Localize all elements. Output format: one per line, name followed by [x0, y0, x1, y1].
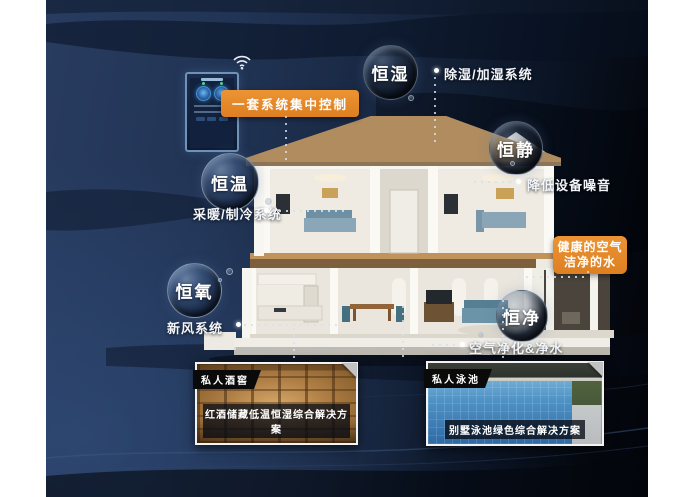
panel-button — [207, 117, 216, 121]
wine-cellar-caption: 红酒储藏低温恒湿综合解决方案 — [203, 404, 349, 438]
bubble-dot — [408, 95, 414, 101]
panel-button — [196, 117, 205, 121]
dotted-connector — [272, 210, 348, 212]
bubble-dot — [226, 268, 233, 275]
dotted-connector — [285, 116, 287, 162]
house-lower-floor — [242, 268, 610, 340]
pool-badge: 私人泳池 — [424, 369, 492, 388]
dotted-connector — [432, 344, 459, 346]
pool-photo-card: 私人泳池 别墅泳池绿色综合解决方案 — [426, 361, 604, 446]
bubble-dot — [510, 161, 515, 166]
connector-dot — [264, 208, 269, 213]
dotted-connector — [519, 276, 589, 278]
healthy-air-water-box: 健康的空气 洁净的水 — [553, 236, 627, 274]
bubble-oxygen: 恒氧 — [167, 263, 222, 318]
bubble-temperature: 恒温 — [201, 153, 259, 211]
dotted-connector — [434, 77, 436, 145]
note-temperature: 采暖/制冷系统 — [193, 204, 282, 223]
connector-dot — [460, 342, 465, 347]
bubble-dot — [218, 278, 222, 282]
bubble-humidity: 恒湿 — [363, 45, 418, 100]
dotted-connector — [502, 300, 504, 358]
connector-dot — [434, 68, 439, 73]
wifi-icon — [232, 54, 252, 70]
dotted-connector — [587, 271, 589, 278]
wine-cellar-photo-card: 私人酒窖 红酒储藏低温恒湿综合解决方案 — [195, 362, 358, 445]
note-purity: 空气净化&净水 — [469, 338, 563, 357]
dotted-connector — [244, 324, 338, 326]
highlight-line-1: 健康的空气 — [553, 240, 627, 255]
poster-canvas: 一套系统集中控制 健康的空气 洁净的水 恒湿 恒静 恒温 恒氧 恒净 除湿/加湿… — [46, 0, 648, 497]
wine-cellar-badge: 私人酒窖 — [193, 370, 261, 389]
folded-corner — [342, 363, 357, 378]
note-humidity: 除湿/加湿系统 — [444, 64, 533, 83]
dotted-connector — [293, 328, 295, 361]
dotted-connector — [474, 181, 515, 183]
panel-dial — [196, 86, 211, 101]
note-oxygen: 新风系统 — [167, 318, 223, 337]
bubble-quiet: 恒静 — [489, 121, 543, 175]
folded-corner — [588, 362, 603, 377]
dotted-connector — [402, 306, 404, 360]
panel-title-bar — [201, 78, 223, 81]
panel-button — [219, 117, 228, 121]
connector-dot — [516, 179, 521, 184]
connector-dot — [236, 322, 241, 327]
central-control-tag: 一套系统集中控制 — [221, 90, 359, 117]
pool-caption: 别墅泳池绿色综合解决方案 — [445, 420, 584, 439]
highlight-line-2: 洁净的水 — [553, 255, 627, 270]
note-quiet: 降低设备噪音 — [527, 175, 611, 194]
